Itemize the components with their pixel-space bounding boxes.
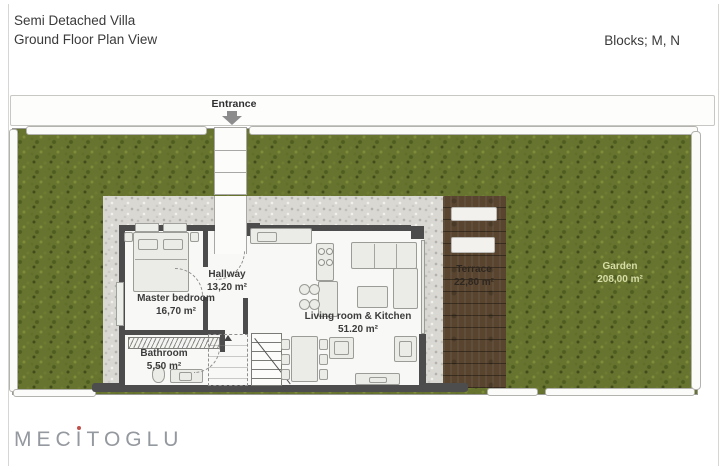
fence-bottom-mid xyxy=(487,388,538,396)
dining-chair xyxy=(281,354,290,365)
kitchen-sink xyxy=(257,232,277,242)
terrace-label: Terrace 22,80 m² xyxy=(444,263,504,289)
glass-door-terrace xyxy=(421,240,425,334)
room-name: Terrace xyxy=(444,263,504,276)
terrace-lounger xyxy=(451,237,495,253)
pavement-strip xyxy=(10,95,715,126)
fence-top-left xyxy=(26,126,207,135)
tv-unit xyxy=(355,373,400,385)
logo-part-2: TOGLU xyxy=(87,428,184,451)
nightstand xyxy=(124,232,133,242)
sink-basin xyxy=(179,372,192,381)
sofa-horizontal xyxy=(351,242,417,269)
stove-burner xyxy=(326,259,333,266)
terrace-deck xyxy=(443,196,506,388)
bar-stool xyxy=(309,284,320,295)
fence-left xyxy=(9,129,18,392)
dining-table xyxy=(291,336,318,382)
title-line-2: Ground Floor Plan View xyxy=(14,30,157,49)
fence-bottom-right xyxy=(545,388,695,396)
pillow xyxy=(138,239,158,250)
terrace-lounger xyxy=(451,207,497,221)
sheet-border-right xyxy=(718,4,719,466)
sofa-corner xyxy=(393,268,418,309)
room-area: 22,80 m² xyxy=(444,276,504,289)
fence-bottom-left xyxy=(13,389,96,397)
logo-letter-i: I xyxy=(76,428,87,452)
window-bedroom-1 xyxy=(135,223,159,232)
kitchen-counter xyxy=(250,228,312,244)
tv-screen xyxy=(369,377,387,383)
fence-top-right xyxy=(249,126,698,135)
entrance-label: Entrance xyxy=(196,98,272,110)
entry-path xyxy=(214,127,247,195)
room-name: Garden xyxy=(573,260,667,273)
room-area: 51.20 m² xyxy=(299,323,417,336)
logo-part-1: MEC xyxy=(14,428,76,451)
window-bedroom-left xyxy=(116,282,124,326)
nightstand xyxy=(190,232,199,242)
armchair xyxy=(329,337,354,359)
room-area: 13,20 m² xyxy=(198,281,256,294)
armchair-seat xyxy=(399,341,412,357)
stove-burner xyxy=(318,259,325,266)
bathroom-label: Bathroom 5,50 m² xyxy=(130,347,198,373)
dining-chair xyxy=(319,339,328,350)
wall-bedroom-right-upper xyxy=(203,225,208,267)
fence-right xyxy=(691,131,701,390)
dining-chair xyxy=(319,354,328,365)
dining-chair xyxy=(319,369,328,380)
sofa-cushion-divider xyxy=(374,244,375,268)
master-bedroom-label: Master bedroom 16,70 m² xyxy=(126,292,226,318)
armchair-seat xyxy=(334,341,349,355)
room-name: Bathroom xyxy=(130,347,198,360)
pillow xyxy=(163,239,183,250)
path-stone-divider xyxy=(215,150,246,151)
room-name: Hallway xyxy=(198,268,256,281)
blanket-line xyxy=(135,259,187,260)
dining-chair xyxy=(281,369,290,380)
sofa-cushion-divider xyxy=(396,244,397,268)
wall-hallway-right xyxy=(243,298,248,334)
dining-chair xyxy=(281,339,290,350)
brand-logo: MECITOGLU xyxy=(14,428,183,452)
stove-burner xyxy=(326,248,333,255)
title-line-1: Semi Detached Villa xyxy=(14,11,157,30)
blocks-label: Blocks; M, N xyxy=(540,33,680,48)
room-area: 208,00 m² xyxy=(573,273,667,286)
window-bedroom-2 xyxy=(163,223,187,232)
room-area: 16,70 m² xyxy=(126,305,226,318)
wall-living-right-lower xyxy=(419,334,426,385)
path-stone-divider xyxy=(215,172,246,173)
page-title: Semi Detached Villa Ground Floor Plan Vi… xyxy=(14,11,157,49)
entrance-porch xyxy=(214,196,247,254)
living-kitchen-label: Living room & Kitchen 51.20 m² xyxy=(299,310,417,336)
hallway-label: Hallway 13,20 m² xyxy=(198,268,256,294)
stove-burner xyxy=(318,248,325,255)
stairs-direction-arrow xyxy=(224,335,232,341)
coffee-table xyxy=(357,286,388,308)
garden-label: Garden 208,00 m² xyxy=(573,260,667,286)
floor-plan-sheet: Semi Detached Villa Ground Floor Plan Vi… xyxy=(0,0,726,470)
entrance-arrowhead-icon xyxy=(222,116,242,125)
bar-stool xyxy=(309,299,320,310)
room-area: 5,50 m² xyxy=(130,360,198,373)
room-name: Living room & Kitchen xyxy=(299,310,417,323)
armchair xyxy=(394,336,417,362)
wall-post-corner xyxy=(411,226,424,239)
